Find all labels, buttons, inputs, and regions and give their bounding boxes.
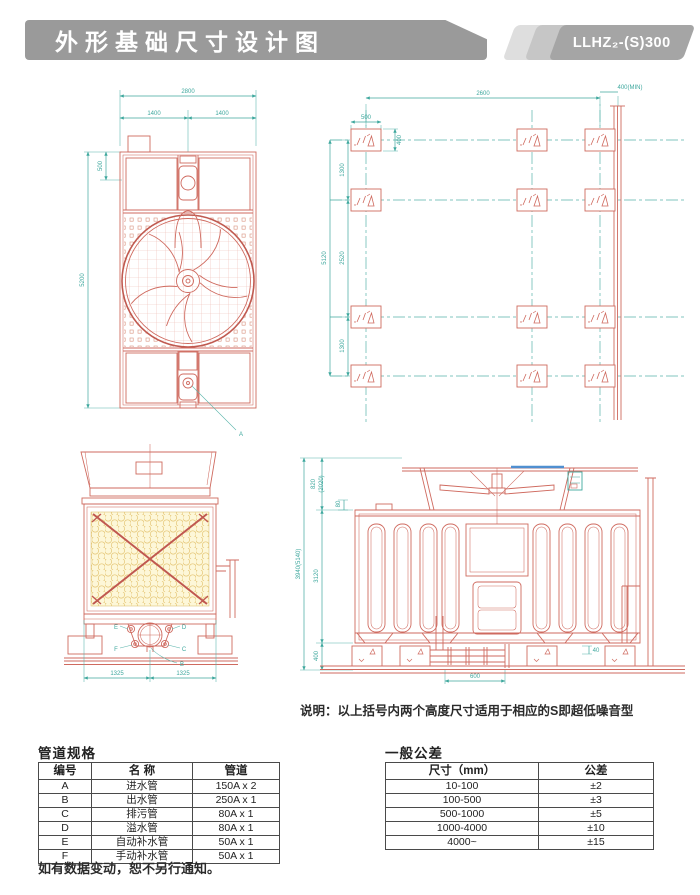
foundation-block-left [68, 636, 102, 654]
basin-supports [357, 633, 638, 643]
foundation-pad [605, 646, 635, 666]
foundation-pad [517, 306, 547, 328]
dimension-label: 820 [311, 478, 317, 489]
table-row: B 出水管 250A x 1 [39, 794, 280, 808]
dimension-label: 1400 [147, 111, 161, 117]
table-cell: ±2 [539, 780, 654, 794]
dimension-label: 1300 [340, 163, 346, 177]
fill-louver-top-right [199, 158, 250, 210]
side-elevation-drawing: 3940(5140) 820 (2020) 3120 400 80 600 40 [290, 438, 690, 693]
foundation-plan-drawing: 2600 500 400 5120 1300 2520 1300 400(MIN… [300, 80, 690, 445]
table-cell: 100-500 [386, 794, 539, 808]
model-label: LLHZ₂-(S)300 [573, 35, 671, 51]
plan-body [120, 136, 256, 408]
table-cell: 进水管 [92, 780, 193, 794]
callout-label: D [182, 625, 187, 631]
dimension-label: 1325 [176, 671, 190, 677]
table-row: E 自动补水管 50A x 1 [39, 836, 280, 850]
table-cell: 80A x 1 [193, 808, 280, 822]
table-cell: 80A x 1 [193, 822, 280, 836]
page-title: 外形基础尺寸设计图 [25, 23, 325, 57]
dimension-label: 1300 [340, 339, 346, 353]
dimension-label: 2800 [181, 89, 195, 95]
column-header: 尺寸（mm） [386, 763, 539, 780]
foundation-pad [351, 306, 381, 328]
table-row: C 排污管 80A x 1 [39, 808, 280, 822]
drawing-sheet: 外形基础尺寸设计图 LLHZ₂-(S)300 2800 1400 1400 50… [0, 0, 700, 895]
table-cell: ±3 [539, 794, 654, 808]
plan-view-drawing: 2800 1400 1400 500 5200 [40, 80, 280, 445]
table-cell: 10-100 [386, 780, 539, 794]
table-row: D 溢水管 80A x 1 [39, 822, 280, 836]
column-header: 编号 [39, 763, 92, 780]
foundation-pad [527, 646, 557, 666]
foundation-pad [352, 646, 382, 666]
title-banner: 外形基础尺寸设计图 [25, 20, 487, 60]
dimension-label: 1325 [110, 671, 124, 677]
table-header-row: 尺寸（mm） 公差 [386, 763, 654, 780]
side-fan-assembly [402, 467, 638, 524]
table-cell: ±10 [539, 822, 654, 836]
dimension-label: 400 [397, 134, 403, 145]
front-callouts: E D F C B [114, 625, 187, 668]
table-cell: A [39, 780, 92, 794]
dimension-label: (2020) [319, 475, 325, 492]
dimension-label: 40 [593, 648, 600, 654]
dimension-label: 400(MIN) [617, 85, 642, 91]
foundation-pad [351, 189, 381, 211]
table-header-row: 编号 名 称 管道 [39, 763, 280, 780]
tolerance-table-title: 一般公差 [385, 742, 443, 762]
foundation-pad [585, 129, 615, 151]
foundation-pad [517, 129, 547, 151]
table-row: 10-100 ±2 [386, 780, 654, 794]
front-elevation-drawing: E D F C B 1325 1325 [40, 438, 290, 693]
table-cell: E [39, 836, 92, 850]
foundation-block-right [198, 636, 232, 654]
table-cell: 50A x 1 [193, 836, 280, 850]
dimension-label: 3120 [314, 569, 320, 583]
table-cell: 250A x 1 [193, 794, 280, 808]
table-cell: 溢水管 [92, 822, 193, 836]
foundation-centerlines [330, 110, 685, 425]
dimension-label: 5120 [322, 251, 328, 265]
overflow-pipe [216, 560, 239, 618]
dimension-label: 500 [98, 160, 104, 171]
dimension-label: 2520 [340, 251, 346, 265]
ground-line [64, 658, 238, 665]
foundation-pad [351, 365, 381, 387]
foundation-pad [400, 646, 430, 666]
dimension-label: 400 [314, 650, 320, 661]
front-body [64, 444, 239, 665]
ground-line [320, 666, 685, 673]
column-header: 名 称 [92, 763, 193, 780]
foundation-pad [585, 306, 615, 328]
table-cell: D [39, 822, 92, 836]
dimension-label: 500 [361, 115, 372, 121]
table-row: 4000~ ±15 [386, 836, 654, 850]
dimension-label: 600 [470, 674, 481, 680]
callout-label: B [180, 662, 184, 668]
table-cell: 出水管 [92, 794, 193, 808]
foundation-pad [517, 189, 547, 211]
side-slots [368, 524, 628, 632]
footer-note: 如有数据变动，恕不另行通知。 [38, 858, 220, 877]
fill-louver-bottom-right [199, 353, 250, 403]
table-cell: ±15 [539, 836, 654, 850]
plan-callout-a: A [192, 386, 243, 438]
table-cell: 自动补水管 [92, 836, 193, 850]
table-cell: ±5 [539, 808, 654, 822]
callout-label: F [114, 647, 118, 653]
valve-box [568, 472, 582, 490]
column-header: 公差 [539, 763, 654, 780]
pipe-table-title: 管道规格 [38, 742, 96, 762]
note-text: 说明：以上括号内两个高度尺寸适用于相应的S即超低噪音型 [300, 700, 633, 719]
table-cell: 4000~ [386, 836, 539, 850]
column-header: 管道 [193, 763, 280, 780]
table-cell: 排污管 [92, 808, 193, 822]
side-riser [645, 478, 656, 666]
foundation-pad [585, 189, 615, 211]
dimension-label: 5200 [80, 273, 86, 287]
callout-label: C [182, 647, 187, 653]
dimension-label: 1400 [215, 111, 229, 117]
table-cell: 150A x 2 [193, 780, 280, 794]
table-row: 500-1000 ±5 [386, 808, 654, 822]
foundation-pad [517, 365, 547, 387]
table-cell: C [39, 808, 92, 822]
table-row: 1000-4000 ±10 [386, 822, 654, 836]
dimension-label: 2600 [476, 91, 490, 97]
side-body [355, 478, 656, 666]
badge-layer-dark: LLHZ₂-(S)300 [549, 25, 696, 60]
table-cell: B [39, 794, 92, 808]
table-cell: 500-1000 [386, 808, 539, 822]
fill-louver-top-left [126, 158, 177, 210]
table-row: A 进水管 150A x 2 [39, 780, 280, 794]
table-cell: 1000-4000 [386, 822, 539, 836]
foundation-pad [351, 129, 381, 151]
table-row: 100-500 ±3 [386, 794, 654, 808]
tolerance-table: 尺寸（mm） 公差 10-100 ±2 100-500 ±3 500-1000 … [385, 762, 654, 850]
pipe-table: 编号 名 称 管道 A 进水管 150A x 2 B 出水管 250A x 1 … [38, 762, 280, 864]
dimension-label: 80 [336, 500, 342, 507]
dimension-label: 3940(5140) [296, 549, 302, 580]
foundation-pads [351, 129, 615, 387]
model-badge: LLHZ₂-(S)300 [505, 25, 689, 60]
foundation-pad [585, 365, 615, 387]
callout-label: E [114, 625, 118, 631]
fill-louver-bottom-left [126, 353, 177, 403]
